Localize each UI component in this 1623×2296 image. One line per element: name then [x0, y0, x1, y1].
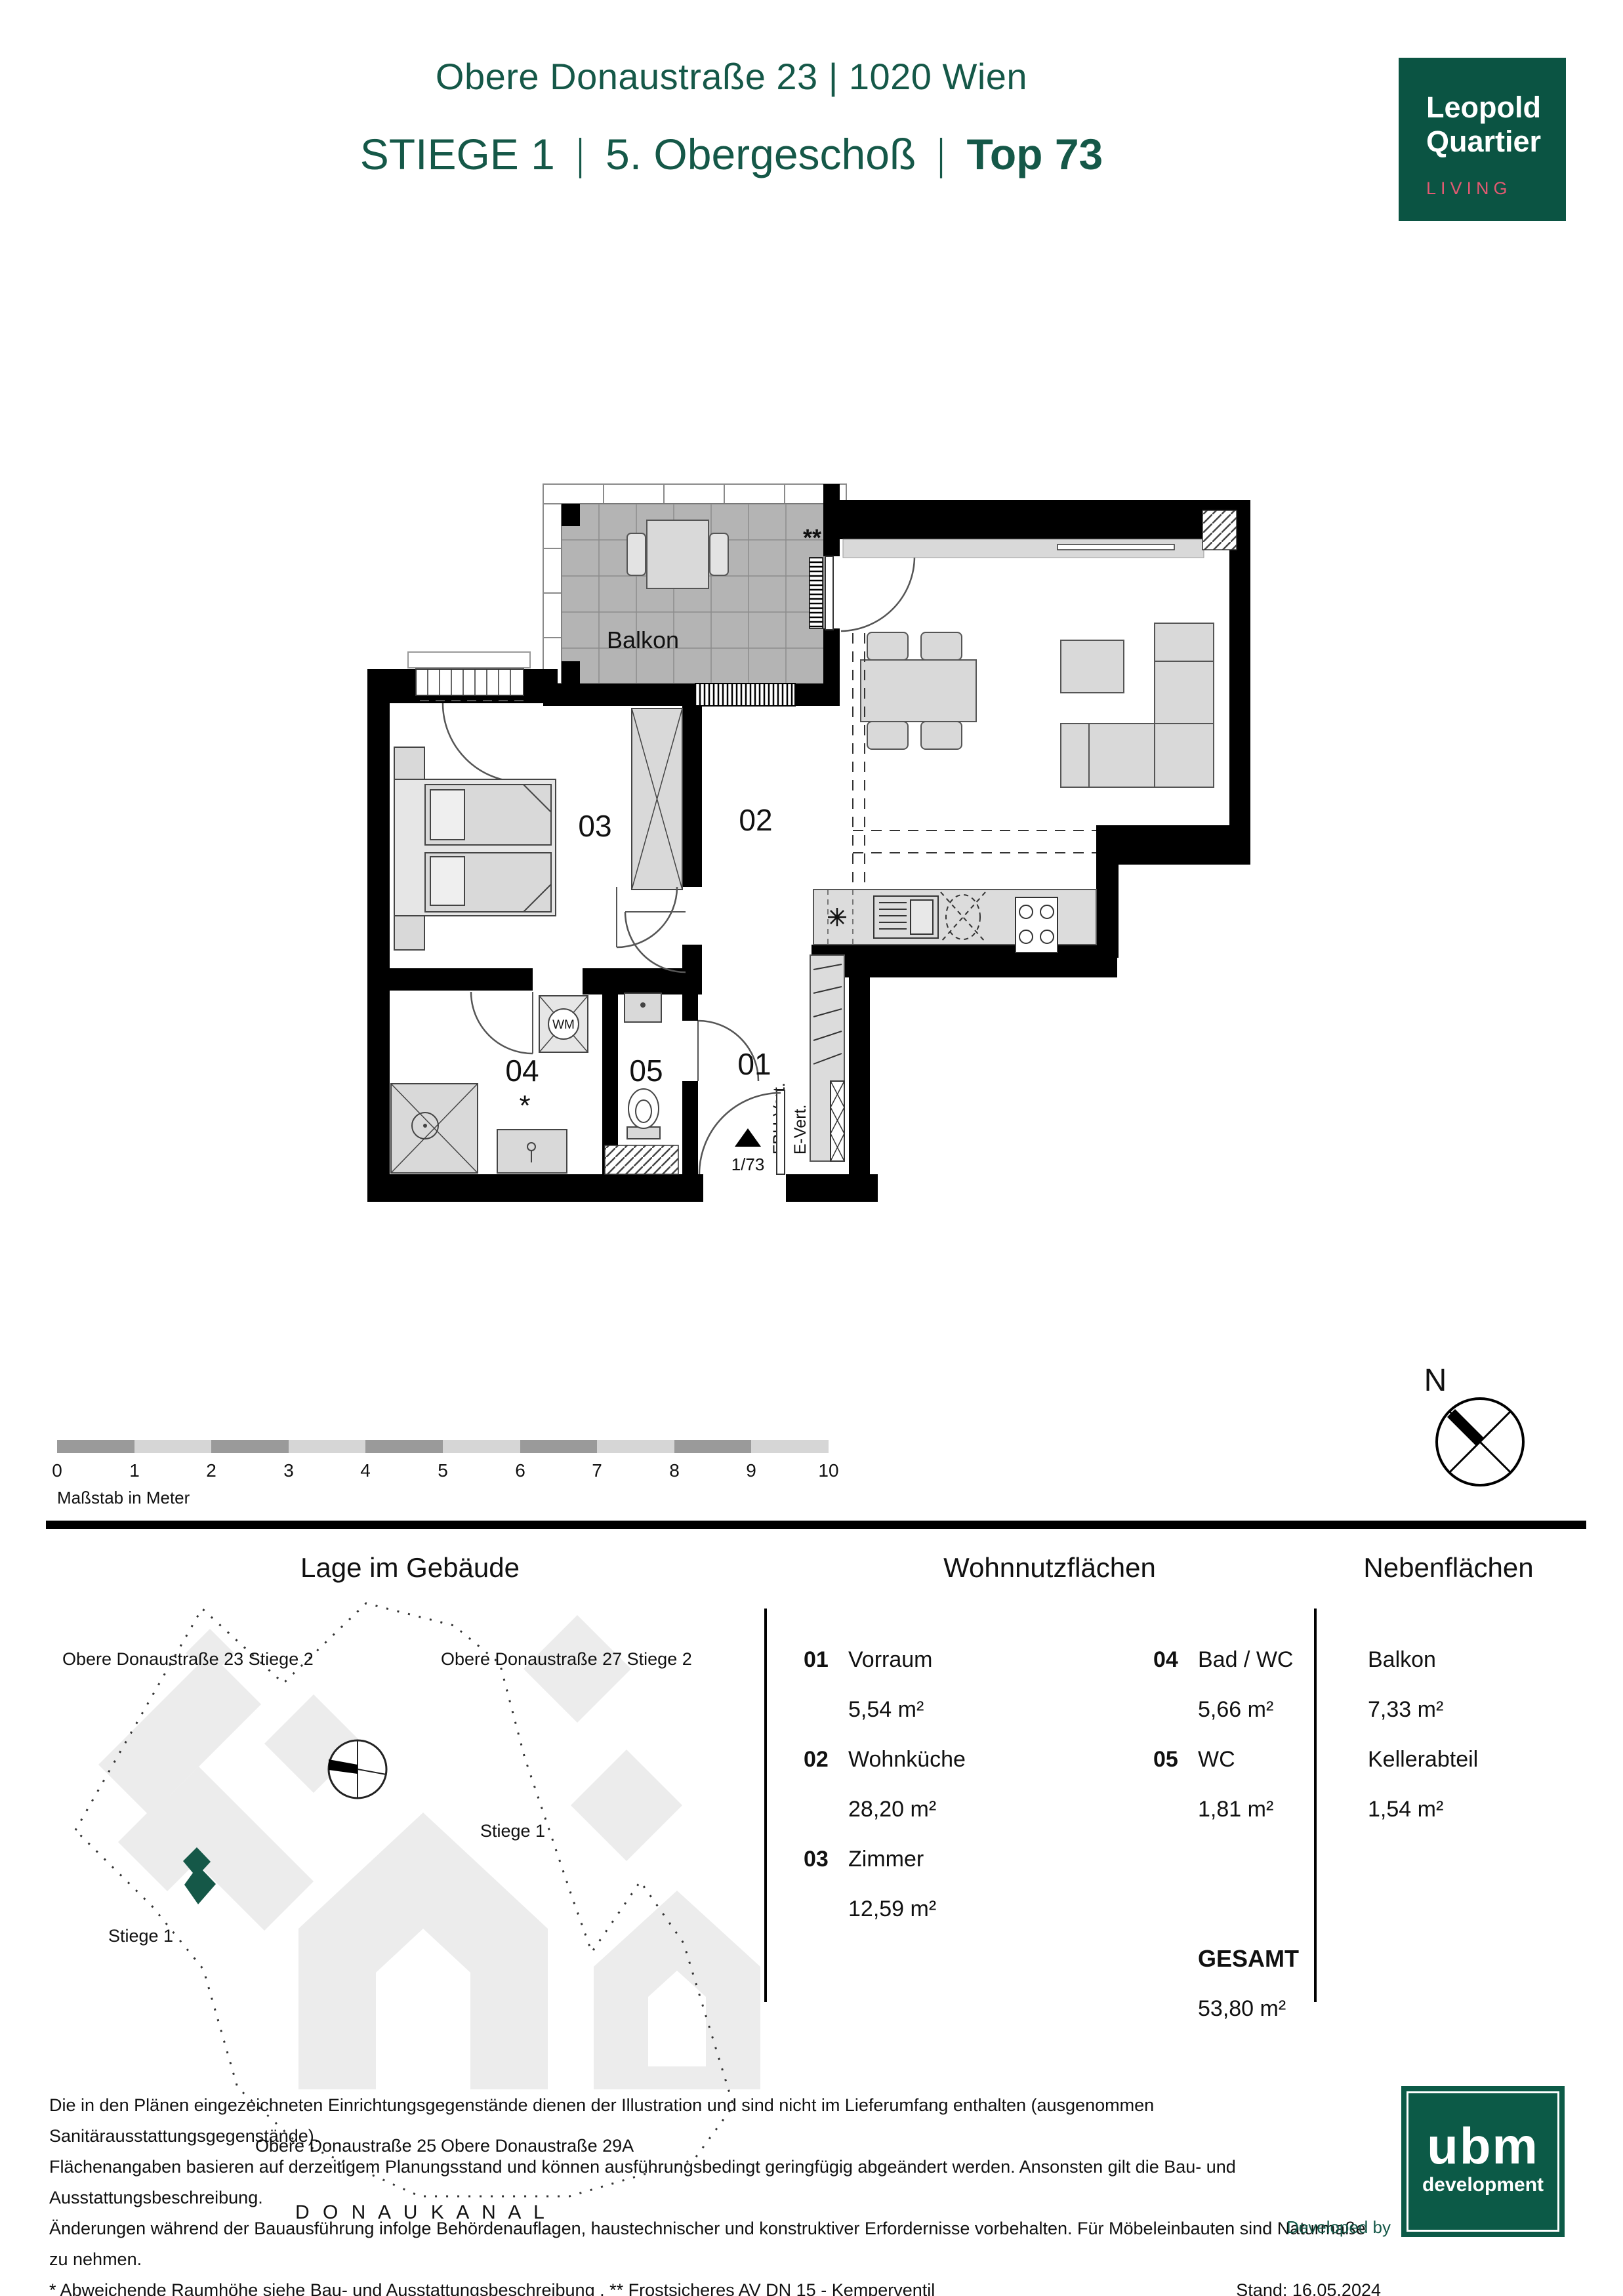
double-star-note: **: [803, 524, 821, 551]
total-label: GESAMT: [1198, 1934, 1434, 1984]
tick-label: 5: [423, 1460, 462, 1481]
footnote-text: * Abweichende Raumhöhe siehe Bau- und Au…: [49, 2275, 935, 2296]
room-area: 7,33 m²: [1368, 1685, 1584, 1734]
dining-table: [861, 660, 976, 722]
balcony-railing-top: [543, 484, 846, 504]
living-areas-col1: 01Vorraum 5,54 m² 02Wohnküche 28,20 m² 0…: [804, 1635, 1119, 1934]
room-area: 12,59 m²: [804, 1884, 1119, 1934]
site-label: Obere Donaustraße 27 Stiege 2: [441, 1649, 692, 1669]
balcony-door-leaf: [825, 556, 833, 630]
room-name: Zimmer: [848, 1847, 924, 1872]
tick-label: 7: [577, 1460, 617, 1481]
tick-label: 0: [37, 1460, 77, 1481]
tick-label: 10: [809, 1460, 848, 1481]
logo-line1: Leopold: [1426, 91, 1566, 125]
tick-label: 9: [731, 1460, 771, 1481]
footer-line: * Abweichende Raumhöhe siehe Bau- und Au…: [49, 2275, 1381, 2296]
room-label-03: 03: [578, 809, 611, 843]
vent-grille: [695, 684, 795, 706]
double-bed: [394, 779, 556, 916]
chair: [921, 722, 962, 749]
riser-shaft: [831, 1081, 844, 1161]
header: Obere Donaustraße 23 | 1020 Wien STIEGE …: [98, 55, 1365, 179]
compass-needle-icon: [1447, 1409, 1484, 1446]
room-number: 03: [804, 1834, 848, 1884]
divider-rule: [46, 1521, 1586, 1529]
ancillary-areas: Balkon 7,33 m² Kellerabteil 1,54 m²: [1368, 1635, 1584, 1834]
ubm-logo-border: [1407, 2091, 1559, 2232]
unit-number: 1/73: [731, 1155, 765, 1174]
chair: [867, 632, 908, 660]
balcony-table: [647, 520, 709, 588]
site-label: Stiege 1: [480, 1821, 545, 1841]
vorraum: 01 FBH-Vert. E-Vert. 1/73: [699, 955, 844, 1174]
cooktop-icon: [1016, 897, 1058, 953]
room-label-04: 04: [505, 1054, 539, 1088]
site-label: Obere Donaustraße 23 Stiege 2: [62, 1649, 314, 1669]
ubm-logo: ubm development: [1401, 2086, 1565, 2237]
tick-label: 3: [269, 1460, 308, 1481]
coffee-table: [1061, 640, 1124, 693]
revision-date: Stand: 16.05.2024: [1236, 2275, 1381, 2296]
shaft-hatch: [1202, 510, 1237, 550]
room-area: 1,54 m²: [1368, 1784, 1584, 1834]
tick-label: 2: [192, 1460, 231, 1481]
bathroom: WM 04 *: [391, 996, 588, 1173]
window-sill: [408, 652, 530, 668]
chair: [867, 722, 908, 749]
scale-caption: Maßstab in Meter: [57, 1488, 190, 1508]
room-name: Vorraum: [848, 1647, 933, 1672]
floor-label: 5. Obergeschoß: [606, 129, 916, 179]
north-label: N: [1424, 1363, 1447, 1398]
washing-machine-icon: WM: [539, 996, 588, 1052]
door-swing: [841, 556, 914, 631]
dishwasher-icon: [874, 896, 938, 938]
tick-label: 4: [346, 1460, 385, 1481]
wm-label: WM: [552, 1018, 575, 1032]
area-item: 02Wohnküche 28,20 m²: [804, 1734, 1119, 1834]
top-number: Top 73: [966, 129, 1103, 179]
separator: |: [577, 129, 583, 179]
developed-by-label: Developed by: [1201, 2217, 1391, 2238]
logo-line2: Quartier: [1426, 125, 1566, 159]
balcony-label: Balkon: [607, 626, 679, 653]
scale-bar: [57, 1440, 829, 1453]
room-number: 05: [1153, 1734, 1198, 1784]
room-label-01: 01: [737, 1047, 771, 1081]
balcony-chair: [710, 533, 728, 575]
footer-notes: Die in den Plänen eingezeichneten Einric…: [49, 2090, 1381, 2296]
room-name: Kellerabteil: [1368, 1734, 1584, 1784]
room-number: 04: [1153, 1635, 1198, 1685]
balcony: Balkon **: [543, 484, 846, 684]
room-label-05: 05: [629, 1054, 663, 1088]
room-area: 5,54 m²: [804, 1685, 1119, 1734]
washbasin: [497, 1130, 567, 1173]
area-item: Balkon 7,33 m² Kellerabteil 1,54 m²: [1368, 1635, 1584, 1834]
tick-label: 1: [115, 1460, 154, 1481]
balcony-chair: [627, 533, 646, 575]
room-area: 28,20 m²: [804, 1784, 1119, 1834]
tick-label: 6: [501, 1460, 540, 1481]
dining-set: [861, 632, 976, 749]
area-item: 03Zimmer 12,59 m²: [804, 1834, 1119, 1934]
footer-line: Flächenangaben basieren auf derzeitigem …: [49, 2152, 1381, 2213]
room-label-02: 02: [739, 803, 772, 837]
pillow: [430, 790, 464, 840]
entrance-door-leaf: [777, 1090, 785, 1174]
footer-line: Die in den Plänen eingezeichneten Einric…: [49, 2090, 1381, 2152]
room-name: Balkon: [1368, 1635, 1584, 1685]
kitchen-counter: [813, 890, 1096, 953]
pillow: [430, 857, 464, 905]
section-title-living: Wohnnutzflächen: [853, 1552, 1246, 1584]
entrance-arrow-icon: [735, 1128, 761, 1147]
floor-plan: Balkon **: [364, 472, 1279, 1233]
nightstand: [394, 747, 424, 779]
site-compass: [329, 1740, 386, 1798]
stiege-label: STIEGE 1: [360, 129, 555, 179]
address-line: Obere Donaustraße 23 | 1020 Wien: [98, 55, 1365, 98]
tick-label: 8: [655, 1460, 694, 1481]
total-area-block: GESAMT 53,80 m²: [1198, 1934, 1434, 2034]
evert-label: E-Vert.: [791, 1105, 810, 1155]
shower: [391, 1084, 478, 1173]
compass: N: [1391, 1345, 1535, 1496]
bedroom-window: [416, 669, 524, 695]
door-swing: [443, 703, 522, 782]
room-name: Bad / WC: [1198, 1647, 1293, 1672]
room-name: Wohnküche: [848, 1747, 966, 1772]
total-value: 53,80 m²: [1198, 1984, 1434, 2034]
frost-valve-icon: [828, 908, 846, 926]
logo-tagline: LIVING: [1426, 178, 1566, 199]
chair: [921, 632, 962, 660]
leopold-quartier-logo: Leopold Quartier LIVING: [1399, 58, 1566, 221]
footer-line: Änderungen während der Bauausführung inf…: [49, 2213, 1381, 2275]
room-name: WC: [1198, 1747, 1235, 1772]
shaft-hatch: [605, 1145, 678, 1174]
site-label: Stiege 1: [108, 1926, 173, 1946]
section-title-site: Lage im Gebäude: [213, 1552, 607, 1584]
room-number: 01: [804, 1635, 848, 1685]
toilet-icon: [627, 1089, 660, 1139]
area-item: 01Vorraum 5,54 m²: [804, 1635, 1119, 1734]
nightstand: [394, 916, 424, 950]
section-title-ancillary: Nebenflächen: [1252, 1552, 1623, 1584]
unit-title: STIEGE 1 | 5. Obergeschoß | Top 73: [98, 129, 1365, 179]
floorplan-sheet: Obere Donaustraße 23 | 1020 Wien STIEGE …: [0, 0, 1623, 2296]
sideboard: [1058, 544, 1174, 550]
wardrobe: [632, 708, 682, 890]
balcony-door-grille: [810, 558, 823, 628]
room-number: 02: [804, 1734, 848, 1784]
separator: |: [938, 129, 945, 179]
star-note: *: [519, 1090, 530, 1122]
